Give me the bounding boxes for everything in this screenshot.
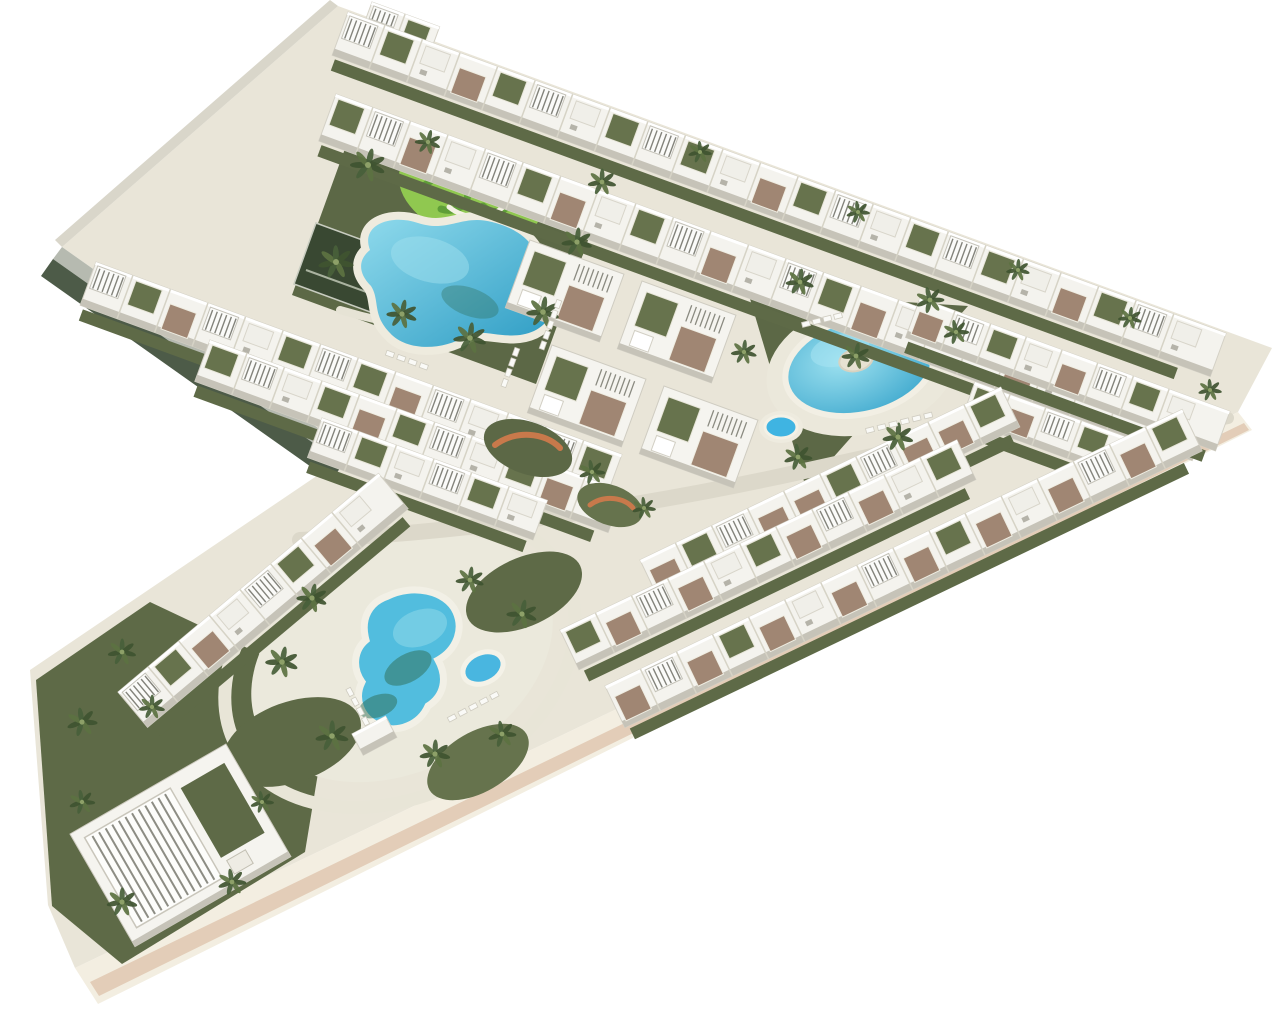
scene-root bbox=[30, 0, 1272, 1004]
aerial-render-canvas bbox=[0, 0, 1280, 1024]
site-plan-render bbox=[0, 0, 1280, 1024]
spa-pool-c bbox=[765, 416, 797, 438]
